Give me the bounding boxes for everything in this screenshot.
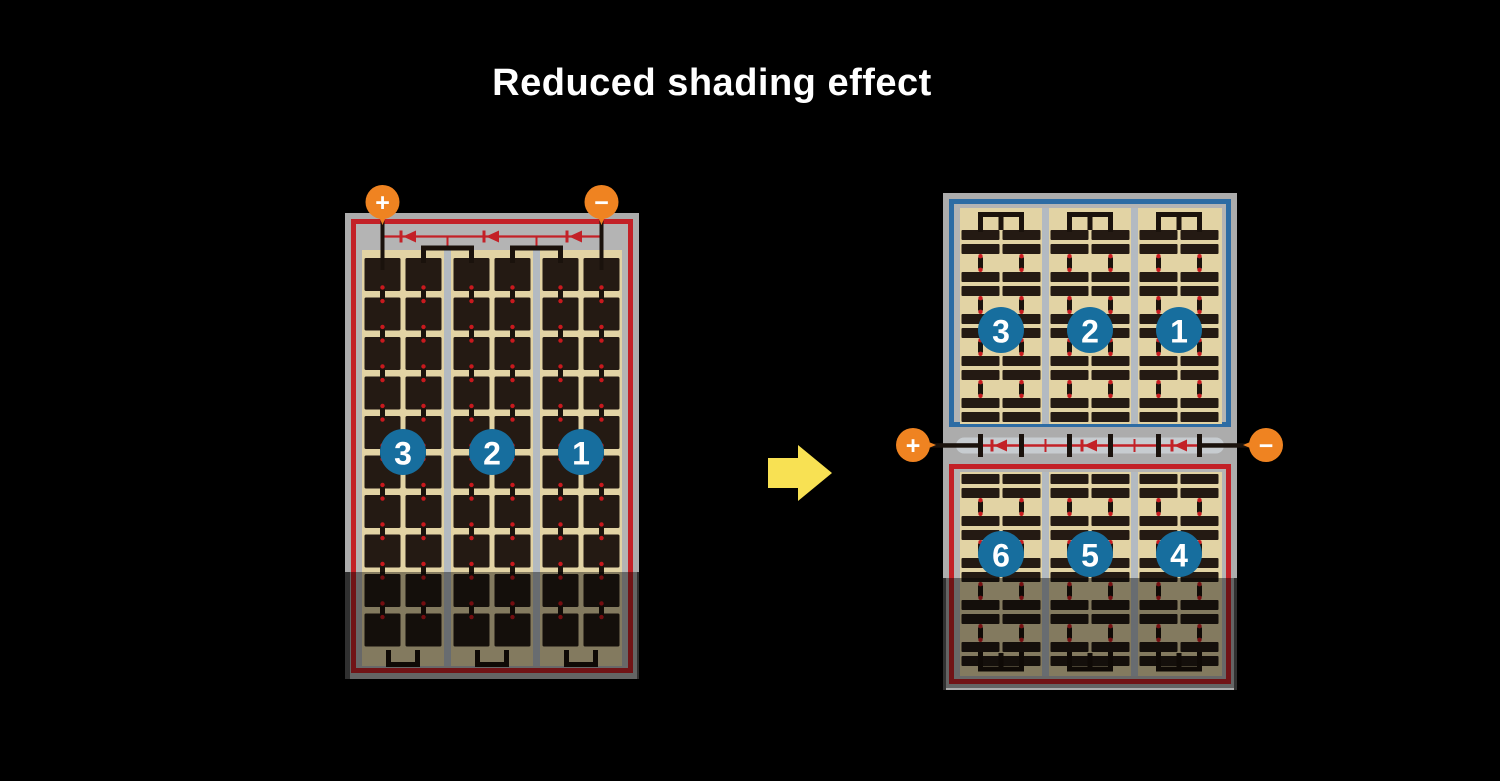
string-number-badge: 4 (1156, 531, 1202, 577)
positive-terminal-right: + (896, 428, 936, 462)
svg-text:+: + (375, 189, 390, 217)
transition-arrow (768, 445, 832, 501)
svg-text:1: 1 (572, 436, 590, 472)
svg-text:−: − (1259, 432, 1274, 460)
string-number-badge: 5 (1067, 531, 1113, 577)
svg-text:1: 1 (1170, 314, 1188, 350)
top-module: 321 (943, 193, 1237, 433)
svg-text:5: 5 (1081, 538, 1099, 574)
string-number-badge: 3 (380, 429, 426, 475)
svg-text:6: 6 (992, 538, 1010, 574)
svg-text:+: + (906, 432, 921, 460)
string-number-badge: 2 (1067, 307, 1113, 353)
string-number-badge: 2 (469, 429, 515, 475)
left-panel: 321+− (337, 185, 650, 690)
string-number-badge: 1 (558, 429, 604, 475)
junction-strip (943, 431, 1237, 460)
string-number-badge: 3 (978, 307, 1024, 353)
diagram-canvas: 321+−321654+− (0, 0, 1500, 781)
svg-text:2: 2 (483, 436, 501, 472)
shading-effect-diagram: Reduced shading effect 321+−321654+− (0, 0, 1500, 781)
right-panel: 321654+− (896, 193, 1283, 690)
shade-overlay-left (337, 572, 650, 690)
shade-overlay-right (933, 578, 1247, 690)
svg-text:2: 2 (1081, 314, 1099, 350)
svg-text:3: 3 (992, 314, 1010, 350)
svg-text:4: 4 (1170, 538, 1188, 574)
svg-text:−: − (594, 189, 609, 217)
svg-text:3: 3 (394, 436, 412, 472)
negative-terminal-right: − (1243, 428, 1283, 462)
string-number-badge: 1 (1156, 307, 1202, 353)
string-number-badge: 6 (978, 531, 1024, 577)
